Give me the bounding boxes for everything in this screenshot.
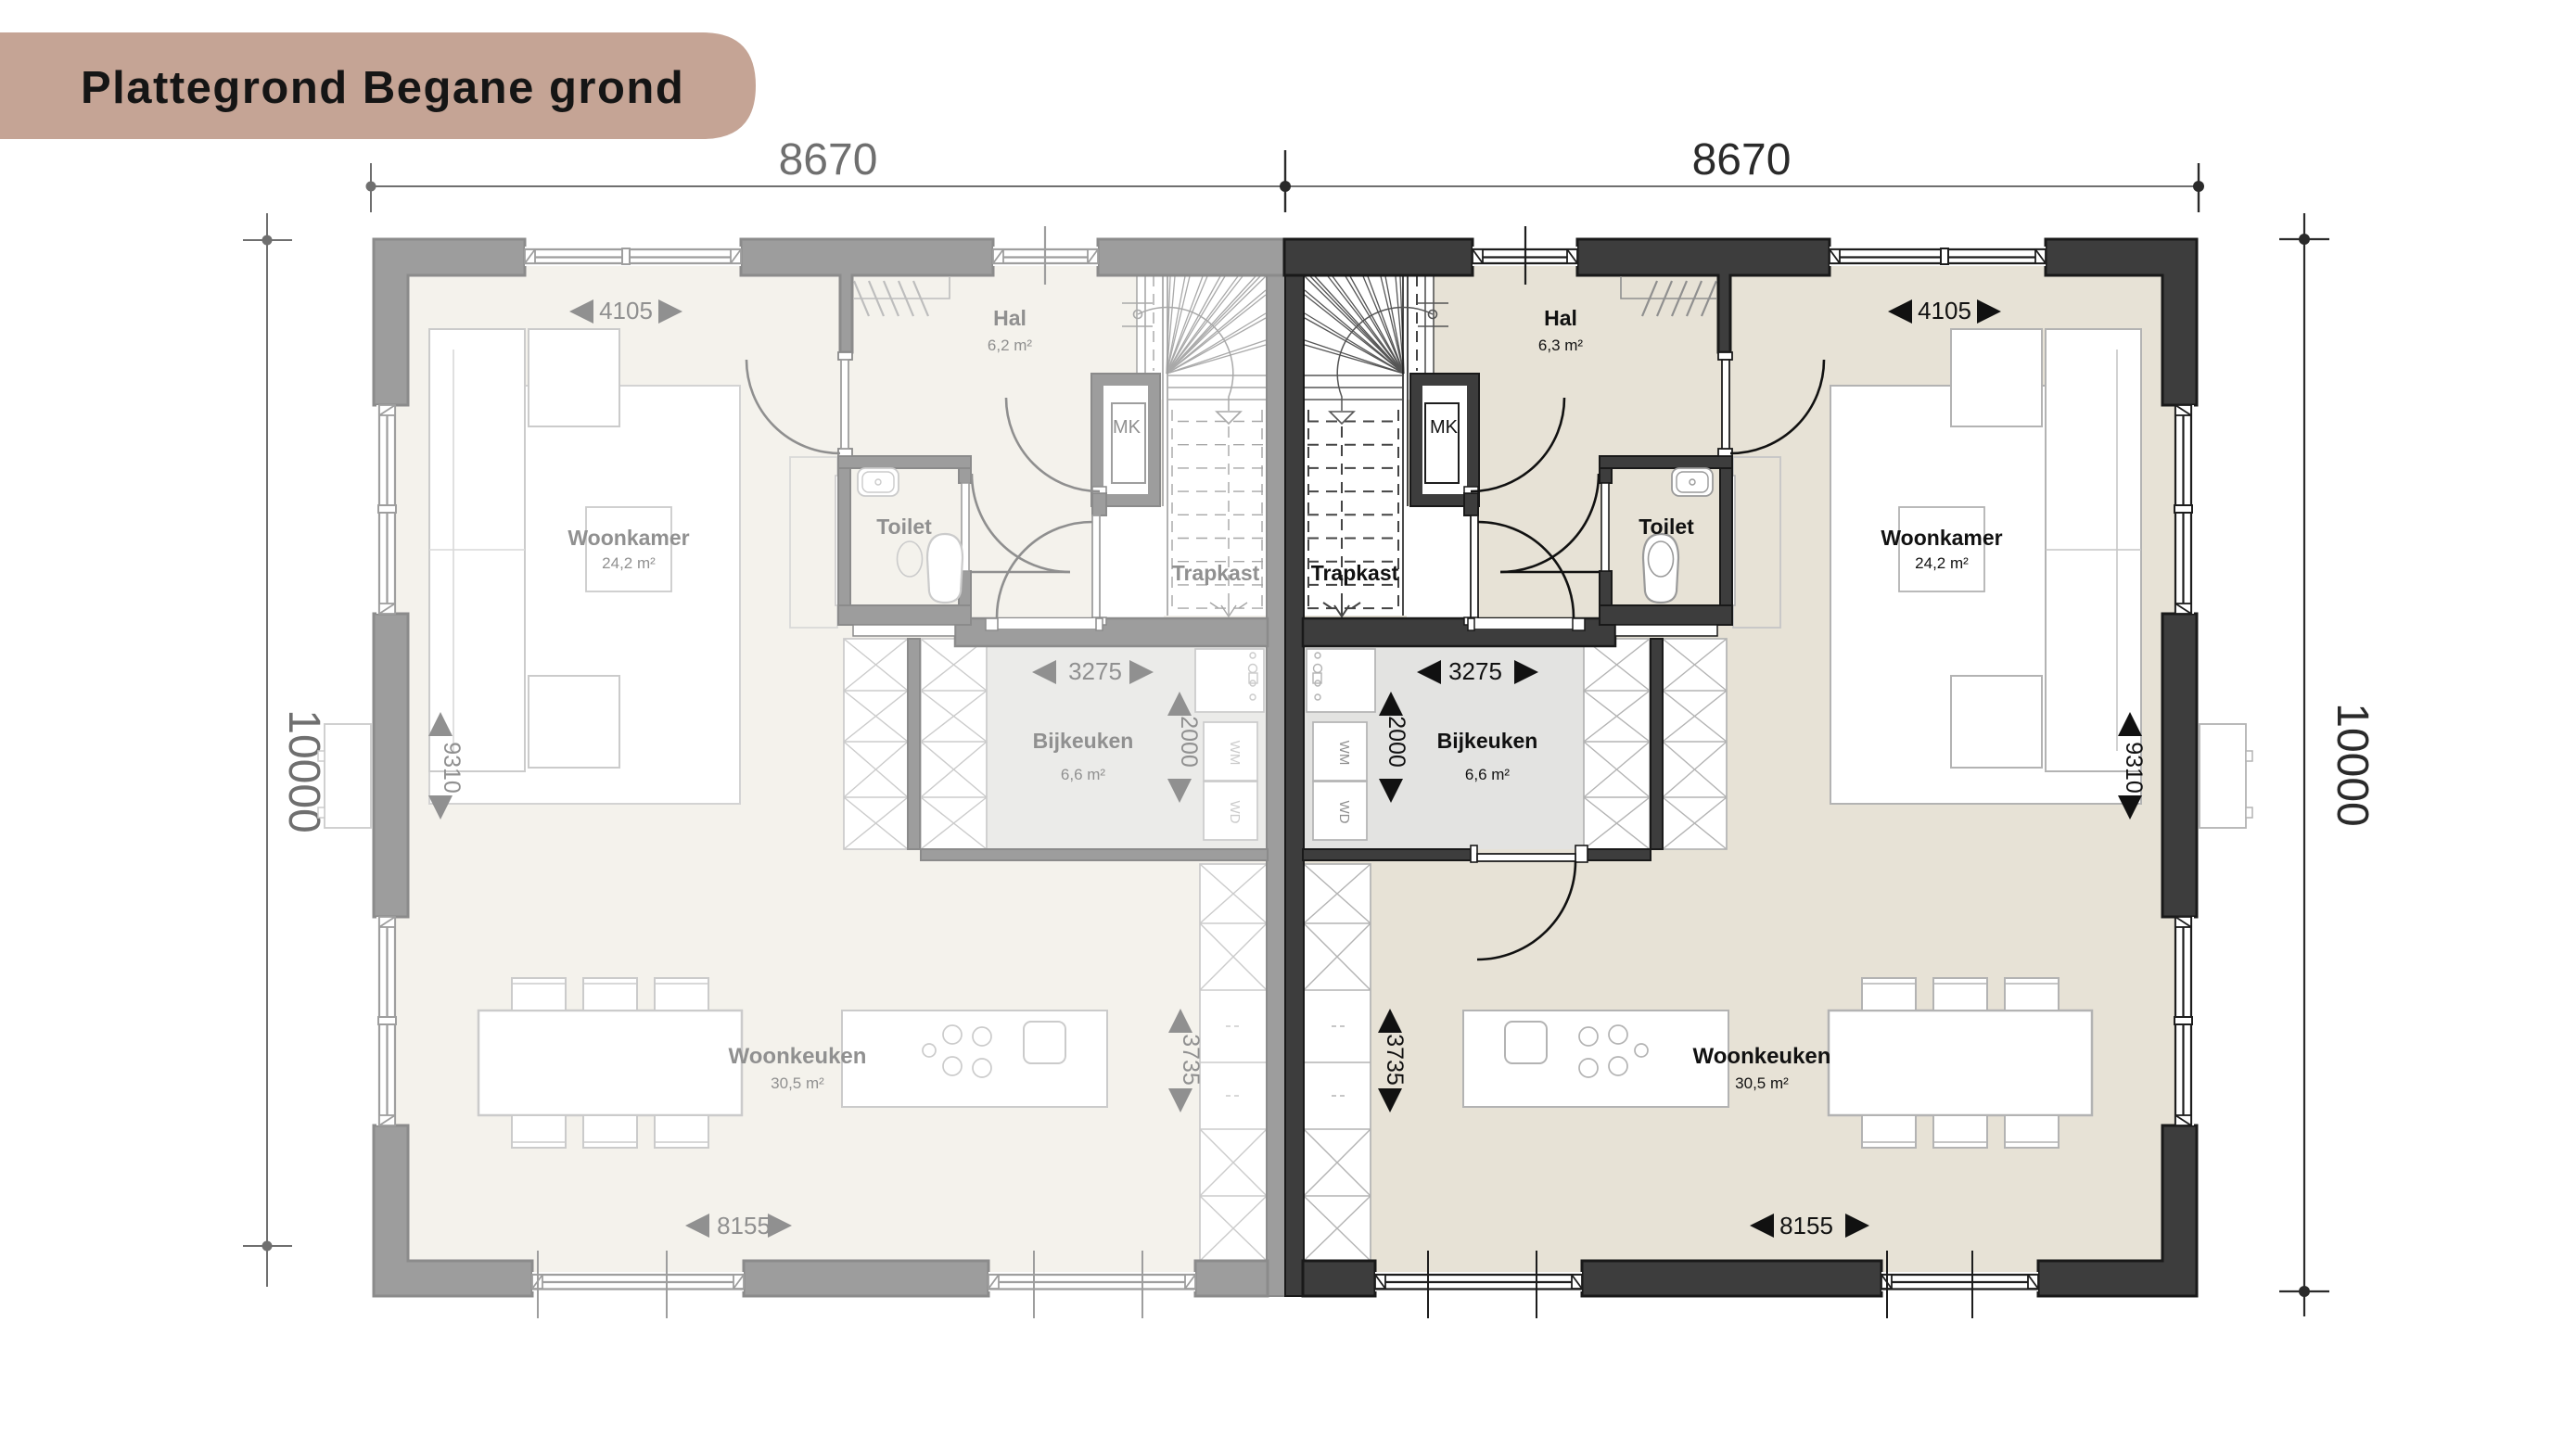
svg-text:9310: 9310	[2121, 742, 2147, 794]
svg-text:4105: 4105	[1918, 297, 1971, 324]
svg-text:Trapkast: Trapkast	[1311, 561, 1399, 585]
svg-text:2000: 2000	[1176, 716, 1202, 768]
svg-text:Toilet: Toilet	[1639, 515, 1694, 539]
svg-text:3735: 3735	[1178, 1034, 1204, 1086]
svg-text:Trapkast: Trapkast	[1172, 561, 1260, 585]
svg-text:MK: MK	[1430, 417, 1459, 438]
svg-text:24,2 m²: 24,2 m²	[1915, 554, 1969, 572]
svg-text:8670: 8670	[1692, 135, 1792, 184]
svg-text:Woonkamer: Woonkamer	[567, 526, 689, 550]
svg-text:8155: 8155	[1779, 1212, 1833, 1239]
svg-text:8155: 8155	[717, 1212, 771, 1239]
svg-text:9310: 9310	[439, 742, 465, 794]
svg-text:2000: 2000	[1384, 716, 1409, 768]
svg-text:Bijkeuken: Bijkeuken	[1033, 729, 1134, 753]
svg-text:30,5 m²: 30,5 m²	[771, 1074, 824, 1092]
svg-text:6,6 m²: 6,6 m²	[1465, 766, 1511, 783]
svg-text:WD: WD	[1336, 801, 1352, 824]
svg-text:Toilet: Toilet	[876, 515, 932, 539]
svg-text:WD: WD	[1227, 801, 1243, 824]
svg-text:6,6 m²: 6,6 m²	[1061, 766, 1106, 783]
svg-text:4105: 4105	[599, 297, 653, 324]
svg-text:6,2 m²: 6,2 m²	[988, 337, 1033, 354]
svg-text:6,3 m²: 6,3 m²	[1538, 337, 1584, 354]
svg-text:Hal: Hal	[1544, 306, 1577, 330]
svg-text:Hal: Hal	[993, 306, 1027, 330]
svg-text:30,5 m²: 30,5 m²	[1735, 1074, 1789, 1092]
svg-text:Woonkeuken: Woonkeuken	[729, 1044, 867, 1069]
svg-text:Bijkeuken: Bijkeuken	[1437, 729, 1538, 753]
svg-text:8670: 8670	[779, 135, 878, 184]
svg-text:WM: WM	[1336, 741, 1352, 766]
svg-text:Plattegrond Begane grond: Plattegrond Begane grond	[81, 63, 684, 113]
svg-text:3275: 3275	[1068, 657, 1122, 685]
svg-text:Woonkeuken: Woonkeuken	[1693, 1044, 1831, 1069]
svg-text:3275: 3275	[1448, 657, 1502, 685]
svg-text:24,2 m²: 24,2 m²	[602, 554, 656, 572]
svg-text:3735: 3735	[1382, 1034, 1408, 1086]
svg-text:10000: 10000	[2327, 703, 2377, 826]
svg-text:WM: WM	[1227, 741, 1243, 766]
svg-text:Woonkamer: Woonkamer	[1881, 526, 2002, 550]
svg-text:MK: MK	[1113, 417, 1141, 438]
